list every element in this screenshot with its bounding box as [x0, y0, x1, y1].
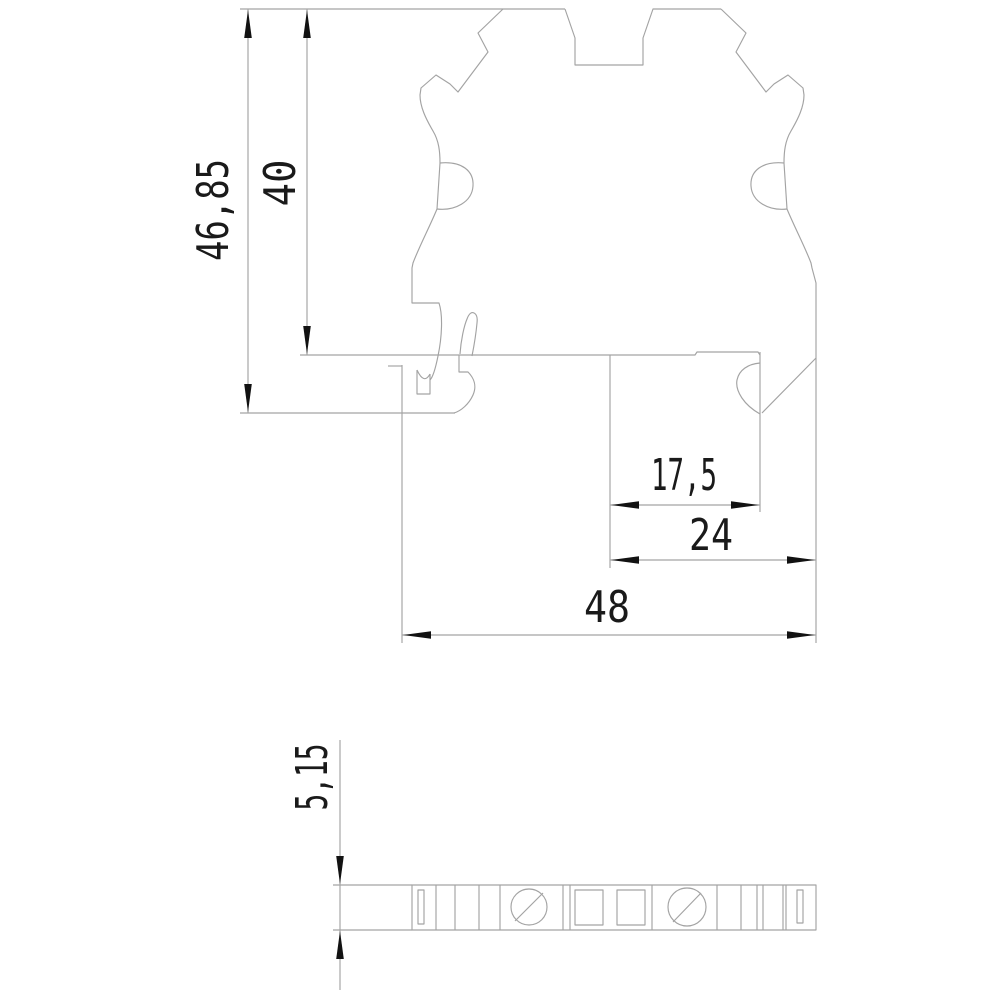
test-socket-bump-left	[437, 163, 473, 210]
arrow-left-icon	[611, 556, 639, 564]
terminal-block-dimension-drawing: 46,85 40 17,5 24 48 5,15	[0, 0, 1000, 1000]
technical-drawing-canvas: 46,85 40 17,5 24 48 5,15	[0, 0, 1000, 1000]
arrow-up-icon	[244, 10, 252, 38]
screw-slot-left-icon	[515, 893, 543, 921]
top-center-notch	[565, 9, 721, 65]
wire-port-square-right	[617, 890, 645, 925]
arrow-right-icon	[787, 556, 815, 564]
bottom-view-slot-right	[797, 890, 803, 923]
arrow-left-icon	[403, 631, 431, 639]
arrow-right-icon	[731, 501, 759, 509]
dim-label-strip-thickness: 5,15	[287, 744, 338, 811]
spring-finger-lower	[454, 355, 475, 413]
dimension-labels: 46,85 40 17,5 24 48 5,15	[188, 159, 733, 811]
side-profile-view	[240, 9, 816, 414]
din-hook-right	[737, 363, 760, 414]
bottom-view-slot-left	[418, 890, 424, 924]
dim-label-body-height: 40	[255, 160, 306, 207]
extension-lines	[333, 352, 816, 930]
arrow-right-icon	[787, 631, 815, 639]
arrow-down-icon	[303, 326, 311, 354]
dim-label-rail-notch-offset: 17,5	[651, 450, 717, 501]
bottom-view-segment-lines	[436, 885, 786, 930]
din-clip-arc-left	[417, 370, 430, 379]
spring-finger-upper	[460, 313, 477, 356]
arrow-down-icon	[244, 384, 252, 412]
profile-left-outline	[412, 9, 503, 380]
bottom-view-outline	[412, 885, 816, 930]
arrowhead-layer	[244, 10, 815, 959]
dim-label-overall-width: 48	[584, 582, 630, 633]
wire-port-square-left	[575, 890, 603, 925]
arrow-left-icon	[611, 501, 639, 509]
arrow-down-icon	[336, 856, 344, 884]
underside-line-and-right-lip	[300, 352, 760, 355]
test-socket-bump-right	[751, 163, 787, 210]
dim-label-overall-height: 46,85	[188, 159, 239, 261]
outline-layer	[240, 9, 816, 990]
dim-label-base-width: 24	[689, 510, 733, 561]
arrow-up-icon	[336, 931, 344, 959]
screw-slot-right-icon	[673, 893, 701, 922]
dimension-lines	[248, 9, 816, 990]
bottom-view	[412, 885, 816, 930]
arrow-up-icon	[303, 10, 311, 38]
